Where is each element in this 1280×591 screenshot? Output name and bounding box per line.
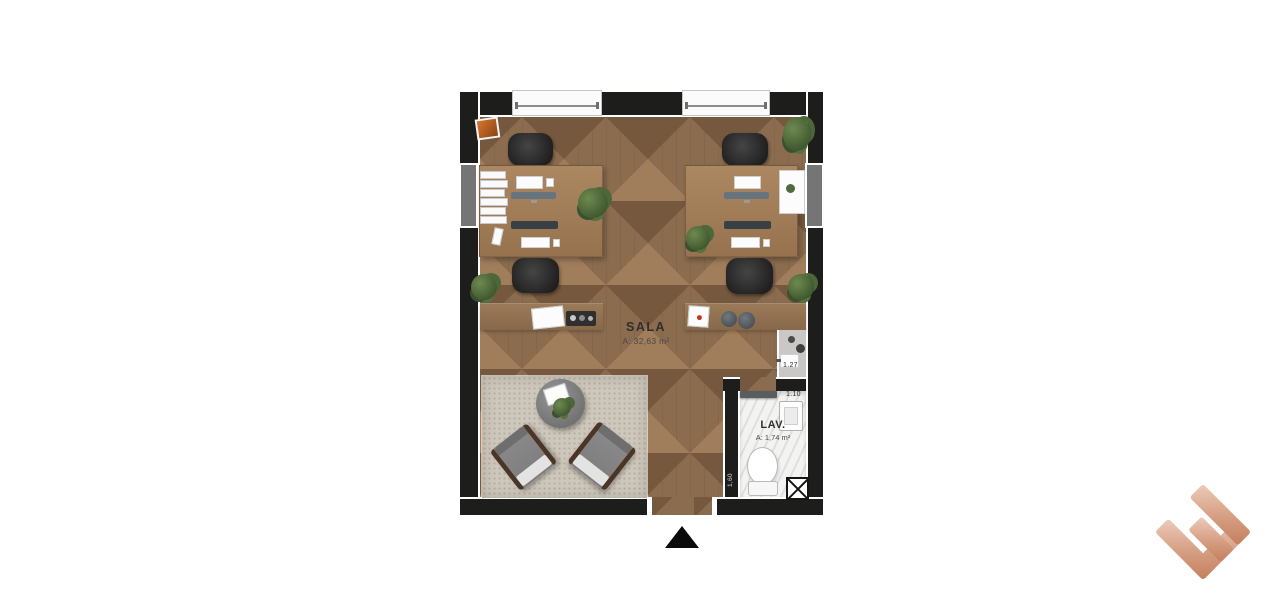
toilet-tank	[748, 481, 778, 496]
room-area-lav: A: 1,74 m²	[740, 433, 806, 442]
office-chair	[722, 133, 768, 166]
window-frame-tick	[515, 102, 518, 109]
window-left	[459, 163, 478, 228]
keyboard	[521, 237, 550, 248]
room-label-sala: SALA	[600, 320, 692, 334]
magazine-decor	[531, 305, 565, 329]
dimension-sink-run: 1.27	[783, 362, 798, 369]
window-frame-tick	[596, 102, 599, 109]
brand-e-monogram-icon	[1155, 484, 1251, 580]
dimension-lav-width: 1.10	[786, 391, 801, 398]
plant	[553, 398, 571, 416]
wall-right	[806, 92, 823, 515]
monitor-stand	[744, 200, 750, 203]
window-glass-line	[686, 105, 766, 107]
tray-bottles	[566, 311, 596, 326]
wall-left	[460, 92, 480, 515]
window-right	[805, 163, 824, 228]
mouse	[546, 178, 554, 187]
plant	[788, 274, 814, 300]
office-chair	[726, 258, 773, 294]
room-area-sala: A: 32,63 m²	[596, 336, 696, 346]
plant	[471, 274, 497, 300]
stool	[721, 311, 737, 327]
door-jamb	[712, 497, 717, 515]
plant	[686, 226, 710, 250]
dimension-lav-depth: 1,60	[727, 473, 734, 487]
monitor-stand	[531, 200, 537, 203]
lav-door-leaf	[740, 391, 777, 398]
window-top-right	[682, 90, 770, 116]
entrance-arrow-icon	[665, 526, 699, 548]
door-jamb	[647, 497, 652, 515]
plant	[783, 117, 811, 151]
office-chair	[512, 258, 559, 293]
mouse	[763, 239, 770, 247]
toilet-bowl	[747, 447, 778, 485]
monitor	[511, 221, 558, 229]
shaft-symbol	[786, 477, 809, 500]
mouse	[553, 239, 560, 247]
monitor	[511, 192, 556, 199]
window-frame-tick	[685, 102, 688, 109]
window-top-left	[512, 90, 602, 116]
floorplan-page: SALA A: 32,63 m² 1.27 1.10 1,60 LAV. A: …	[0, 0, 1280, 591]
stool	[738, 312, 755, 329]
binder-stack	[480, 171, 508, 225]
entrance-opening	[652, 497, 712, 515]
magazine-decor	[475, 117, 501, 141]
window-glass-line	[516, 105, 598, 107]
monitor	[724, 192, 769, 199]
monitor	[724, 221, 771, 229]
plant	[578, 188, 608, 218]
leaf-decor	[786, 184, 795, 193]
room-label-lav: LAV.	[740, 419, 806, 431]
lav-door-opening	[740, 377, 776, 391]
faucet	[776, 359, 781, 362]
desk-papers	[734, 176, 761, 189]
desk-papers	[516, 176, 543, 189]
wall-bottom	[460, 497, 823, 515]
keyboard	[731, 237, 760, 248]
office-chair	[508, 133, 553, 166]
window-frame-tick	[764, 102, 767, 109]
